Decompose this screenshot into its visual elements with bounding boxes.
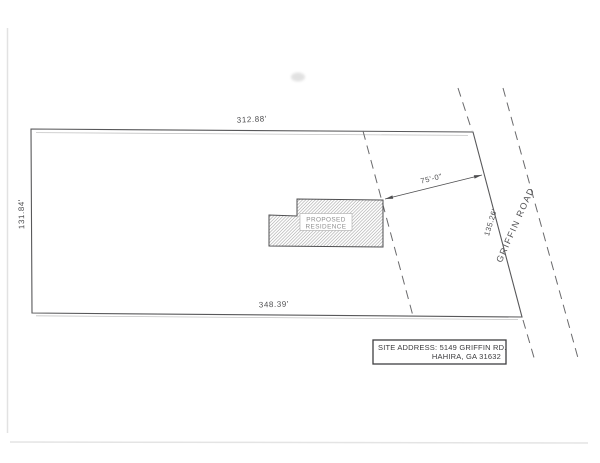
road-name-label: GRIFFIN ROAD [494, 186, 536, 264]
site-address-line1: SITE ADDRESS: 5149 GRIFFIN RD. [378, 343, 507, 352]
site-plan-page: PROPOSED RESIDENCE 75'-0" 312.88' 131.84… [0, 0, 600, 463]
site-address-line2: HAHIRA, GA 31632 [432, 352, 501, 361]
scan-smudge [291, 73, 305, 82]
bottom-boundary-dimension-label: 348.39' [259, 299, 289, 309]
setback-dimension-arrowhead-left [385, 195, 393, 199]
scan-artifact-line-top [36, 133, 468, 136]
site-plan-drawing: PROPOSED RESIDENCE 75'-0" 312.88' 131.84… [0, 0, 600, 463]
page-edge-shadow-bottom [10, 442, 588, 443]
building-label-line2: RESIDENCE [306, 224, 347, 231]
setback-dimension-label: 75'-0" [420, 172, 444, 186]
left-boundary-dimension-label: 131.84' [17, 199, 27, 229]
setback-dimension-arrowhead-right [474, 175, 482, 179]
road-edge-near-upper-dashed [458, 88, 472, 131]
road-edge-near-lower-dashed [523, 320, 535, 361]
top-boundary-dimension-label: 312.88' [237, 114, 268, 125]
building-label-line1: PROPOSED [306, 217, 345, 224]
